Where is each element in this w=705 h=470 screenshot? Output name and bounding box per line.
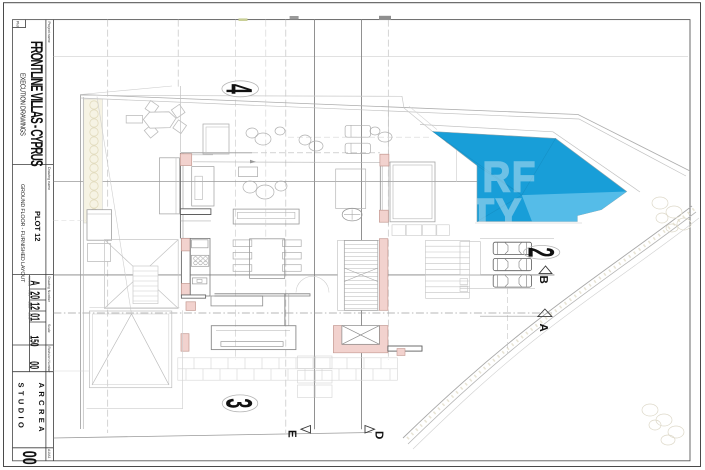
svg-text:June: June bbox=[28, 313, 32, 320]
svg-text:Scale: Scale bbox=[47, 324, 51, 333]
svg-text:4: 4 bbox=[219, 84, 261, 94]
svg-text:00: 00 bbox=[18, 451, 40, 465]
svg-text:GROUND FLOOR - FURNISHED LAYOU: GROUND FLOOR - FURNISHED LAYOUT bbox=[19, 184, 25, 283]
svg-text:EXECUTION DRAWINGS: EXECUTION DRAWINGS bbox=[18, 73, 27, 136]
svg-text:Revision Number: Revision Number bbox=[47, 347, 51, 374]
svg-text:D: D bbox=[372, 431, 384, 439]
svg-text:3: 3 bbox=[219, 398, 261, 408]
svg-text:E: E bbox=[285, 430, 297, 438]
svg-text:PLOT 12: PLOT 12 bbox=[33, 211, 42, 241]
svg-text:A1/A3: A1/A3 bbox=[47, 449, 51, 458]
svg-text:Date: Date bbox=[28, 302, 32, 309]
svg-text:Rev: Rev bbox=[28, 291, 32, 297]
svg-text:TY: TY bbox=[471, 191, 523, 239]
svg-text:Drawing Number: Drawing Number bbox=[47, 277, 51, 303]
svg-text:Issued: Issued bbox=[28, 277, 32, 287]
svg-text:Drawing name: Drawing name bbox=[47, 167, 51, 190]
svg-text:STUDIO: STUDIO bbox=[17, 383, 26, 432]
svg-text:ARCREA: ARCREA bbox=[37, 383, 46, 435]
svg-text:150: 150 bbox=[27, 336, 40, 347]
svg-text:B: B bbox=[537, 276, 549, 284]
svg-text:FRONTLINE VILLAS - CYPRUS: FRONTLINE VILLAS - CYPRUS bbox=[26, 41, 45, 167]
svg-text:Plot: Plot bbox=[16, 21, 20, 27]
svg-text:A: A bbox=[537, 324, 549, 332]
svg-text:00: 00 bbox=[26, 361, 39, 369]
svg-text:Project name: Project name bbox=[47, 22, 51, 43]
svg-text:2: 2 bbox=[520, 247, 562, 257]
